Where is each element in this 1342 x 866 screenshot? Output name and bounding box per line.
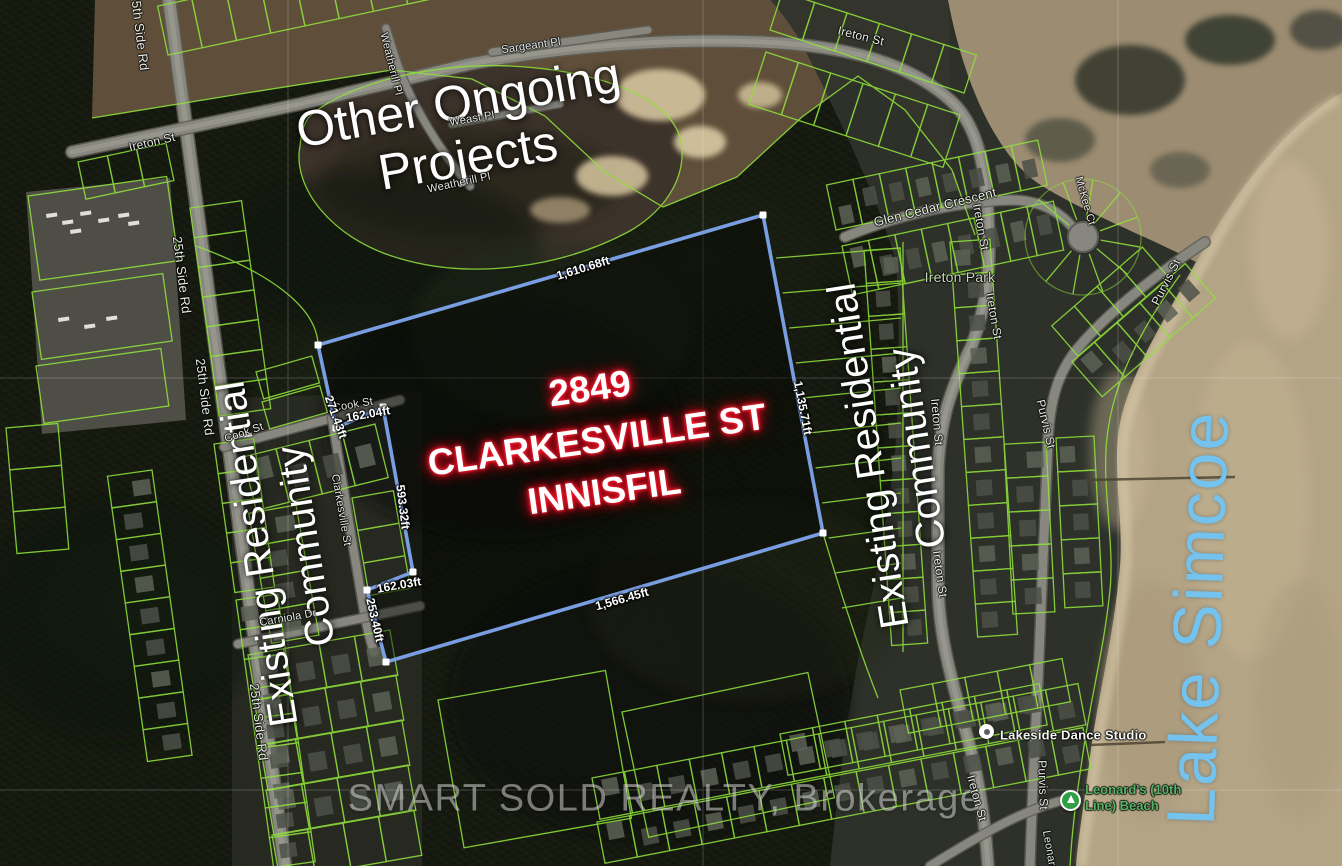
boundary-vertex-dot — [820, 530, 827, 537]
boundary-vertex-dot — [380, 404, 387, 411]
boundary-vertex-dot — [410, 569, 417, 576]
map-graphics — [0, 0, 1342, 866]
boundary-vertex-dot — [760, 212, 767, 219]
boundary-vertex-dot — [383, 659, 390, 666]
boundary-vertex-dot — [333, 425, 340, 432]
boundary-vertex-dot — [315, 342, 322, 349]
boundary-vertex-dot — [364, 587, 371, 594]
map-canvas: Other Ongoing Projects 2849 CLARKESVILLE… — [0, 0, 1342, 866]
